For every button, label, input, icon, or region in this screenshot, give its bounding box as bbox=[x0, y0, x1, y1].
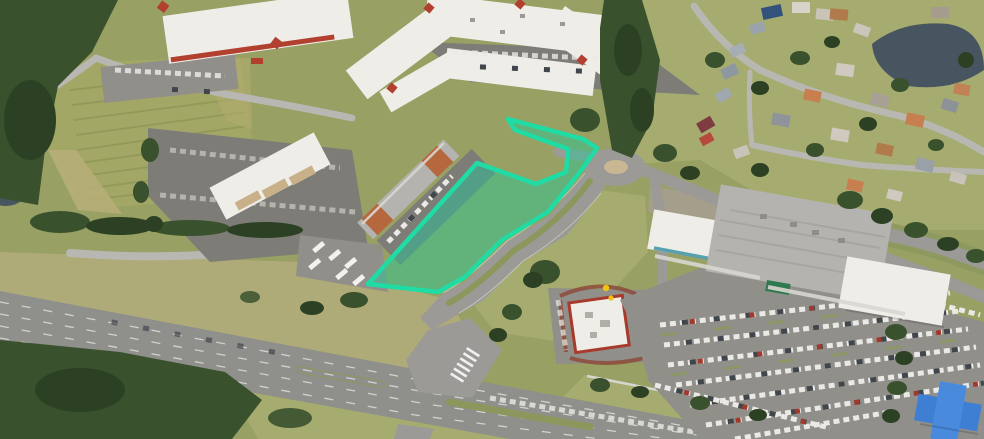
aerial-photo[interactable] bbox=[0, 0, 984, 439]
golden-arches-sign bbox=[603, 285, 609, 291]
